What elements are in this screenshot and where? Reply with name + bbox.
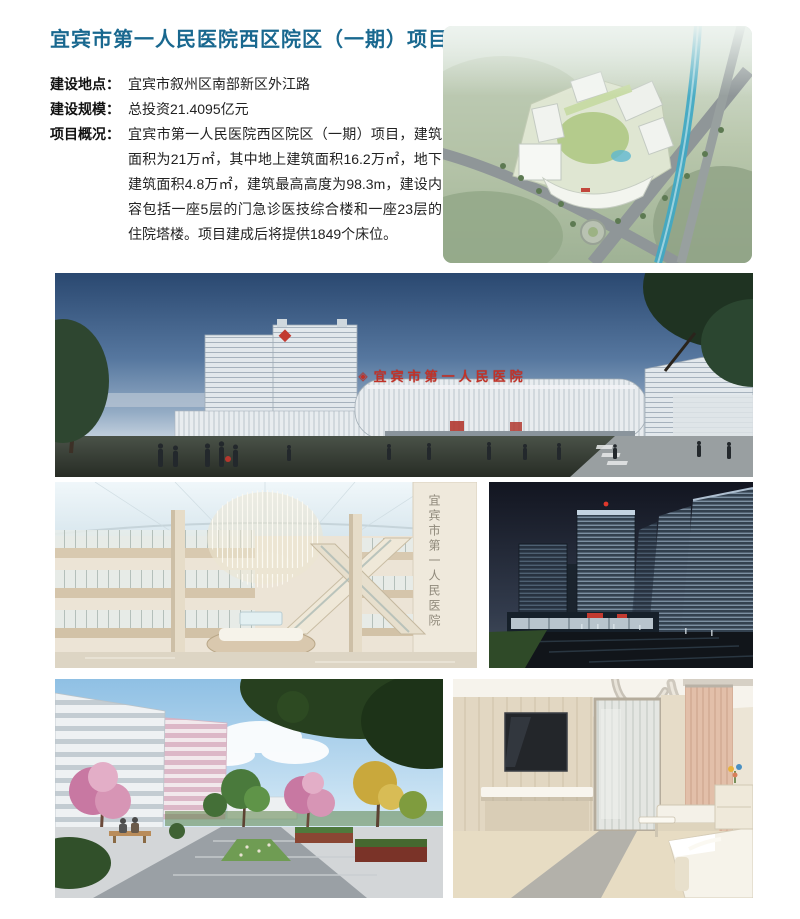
photo-patient-room <box>453 679 753 898</box>
photo-night-view <box>489 482 753 668</box>
facade-sign: ◈ 宜宾市第一人民医院 <box>335 366 550 385</box>
outpatient-building <box>355 379 647 439</box>
detail-row-location: 建设地点： 宜宾市叙州区南部新区外江路 <box>50 72 442 97</box>
night-rendering-svg <box>489 482 753 668</box>
courtyard-rendering-svg <box>55 679 443 898</box>
ward-rendering-svg <box>453 679 753 898</box>
atrium-wall-sign: 宜宾市第一人民医院 <box>426 494 443 642</box>
detail-value: 总投资21.4095亿元 <box>128 97 442 122</box>
hospital-logo-icon: ◈ <box>358 369 367 383</box>
photo-atrium-interior: 宜宾市第一人民医院 <box>55 482 477 668</box>
photo-courtyard-garden <box>55 679 443 898</box>
detail-row-scale: 建设规模： 总投资21.4095亿元 <box>50 97 442 122</box>
detail-row-overview: 项目概况： 宜宾市第一人民医院西区院区（一期）项目，建筑面积为21万㎡，其中地上… <box>50 122 442 247</box>
detail-label: 项目概况： <box>50 122 128 147</box>
aerial-rendering-svg <box>443 26 752 263</box>
entrance-sign-red <box>581 188 590 192</box>
counter-ledge <box>481 787 593 797</box>
facade-sign-text: 宜宾市第一人民医院 <box>374 366 527 385</box>
atrium-rendering-svg <box>55 482 477 668</box>
project-details: 建设地点： 宜宾市叙州区南部新区外江路 建设规模： 总投资21.4095亿元 项… <box>50 72 442 247</box>
podium-red-sign <box>587 613 603 618</box>
detail-value: 宜宾市叙州区南部新区外江路 <box>128 72 442 97</box>
tower-red-logo <box>604 502 609 507</box>
window-sheer-curtain <box>595 699 661 831</box>
detail-label: 建设地点： <box>50 72 128 97</box>
document-page: 宜宾市第一人民医院西区院区（一期）项目 建设地点： 宜宾市叙州区南部新区外江路 … <box>0 0 800 919</box>
photo-main-rendering: ◈ 宜宾市第一人民医院 <box>55 273 753 477</box>
photo-aerial-view <box>443 26 752 263</box>
page-title: 宜宾市第一人民医院西区院区（一期）项目 <box>50 26 480 54</box>
detail-label: 建设规模： <box>50 97 128 122</box>
detail-value: 宜宾市第一人民医院西区院区（一期）项目，建筑面积为21万㎡，其中地上建筑面积16… <box>128 122 442 247</box>
